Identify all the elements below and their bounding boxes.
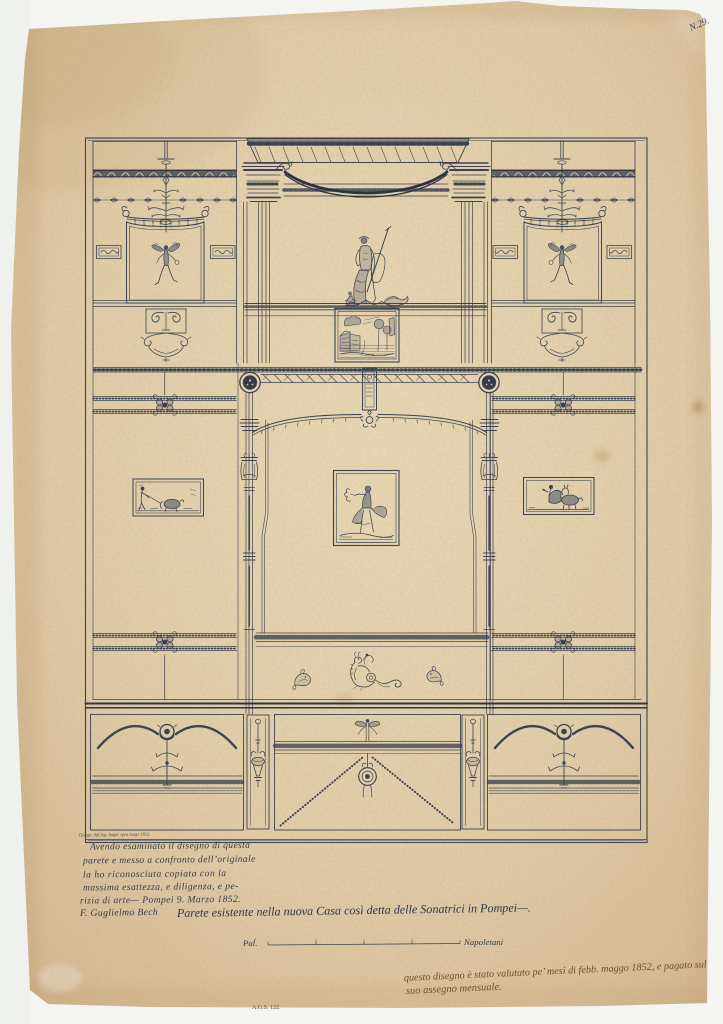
svg-text:massima esattezza, e diligenza: massima esattezza, e diligenza, e pe- [83,881,239,894]
svg-text:parete e messo a confronto del: parete e messo a confronto dell’original… [82,854,256,867]
svg-text:Napoletani: Napoletani [463,937,504,947]
svg-text:Avendo esaminato il disegno di: Avendo esaminato il disegno di questa [89,840,250,853]
svg-text:la ho riconosciuta copiata con: la ho riconosciuta copiata con la [83,868,227,881]
svg-text:Paĺ.: Paĺ. [242,938,257,948]
svg-text:F. Guglielmo Bech: F. Guglielmo Bech [79,907,158,919]
svg-text:A.G.S. 122.: A.G.S. 122. [252,1005,281,1011]
svg-text:Disegn. dal Sig. Angel. spra l: Disegn. dal Sig. Angel. spra luogo 1852. [78,832,150,838]
